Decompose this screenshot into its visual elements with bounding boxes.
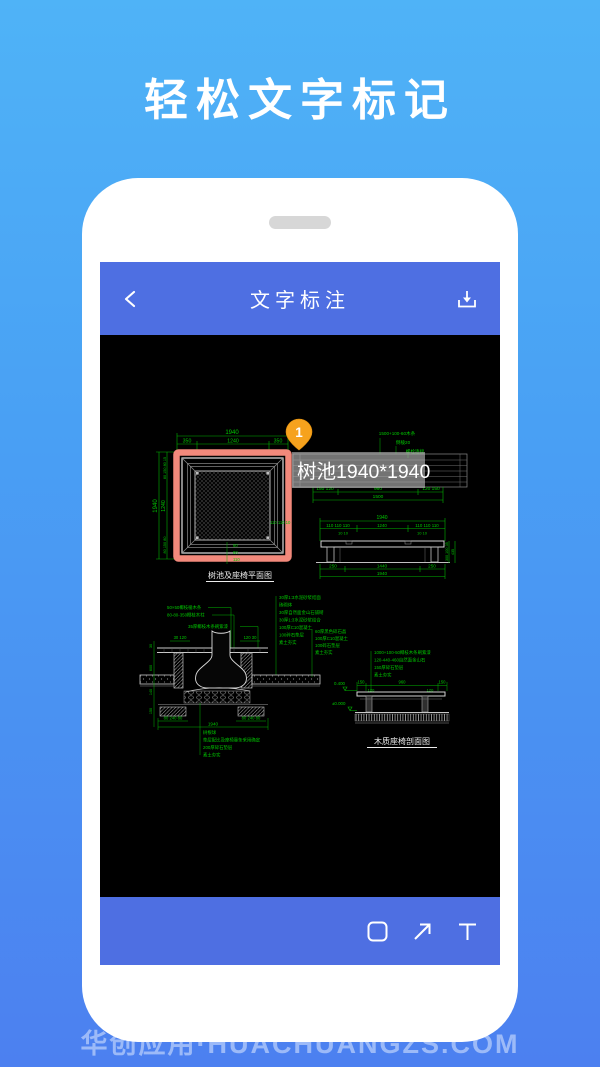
- elev-dim: 110 110 110: [326, 523, 350, 528]
- plan-dim: 80 150 80 15: [163, 457, 167, 479]
- elev-dim: 1440: [377, 564, 388, 569]
- pit-note: 100厚C10混凝土: [315, 635, 349, 642]
- app-screen: 文字标注: [100, 262, 500, 965]
- elevation-mark: ±0.000: [332, 701, 346, 706]
- pit-note: 30厚1:3水泥砂浆结面: [279, 594, 321, 601]
- elev-dim: 435: [451, 549, 455, 555]
- cad-drawing: 1940 350 1240 350 1940 1240 80 150 80 15…: [100, 335, 500, 897]
- elev-dim: 1940: [377, 571, 388, 576]
- bench-plan-dim: 1500: [373, 494, 384, 500]
- annotation-label-text[interactable]: 树池1940*1940: [297, 461, 431, 483]
- elev-dim: 10 10: [417, 531, 428, 536]
- bench-section-caption: 木质座椅剖面图: [374, 736, 430, 746]
- pit-dim: 30 120: [174, 635, 187, 640]
- pit-dim: 600: [149, 665, 153, 671]
- bench-section-dim: 150: [439, 680, 447, 685]
- pit-dim: 80 240 80: [242, 716, 261, 721]
- elev-dim: 1240: [377, 523, 387, 528]
- elev-dim: 110 110 110: [415, 523, 439, 528]
- bench-section-dim: 960: [399, 680, 407, 685]
- chevron-left-icon: [121, 289, 141, 309]
- save-button[interactable]: [450, 282, 484, 316]
- pit-note: 50×50椰枝棱木条: [167, 604, 202, 611]
- elev-dim: 300: [445, 555, 449, 561]
- plan-dim-total-top: 1940: [225, 430, 239, 436]
- arrow-icon: [411, 920, 434, 943]
- pit-note: 垫层配比及座椅靠条采用确定: [203, 737, 261, 744]
- plan-dim: 60: [233, 543, 238, 548]
- bench-section-note: 1000+100-50椰枝木条刷紫漆: [374, 649, 431, 656]
- plan-dim: 110 110 10: [270, 520, 291, 525]
- bench-elevation-view: 1940 110 110 110 1240 110 110 110 10 10 …: [316, 515, 455, 579]
- elevation-mark: 0.400: [334, 681, 346, 686]
- elev-dim: 100 35: [445, 542, 449, 554]
- pit-note: 30厚1:3水泥砂浆结合: [279, 617, 321, 624]
- elev-dim: 1940: [376, 515, 387, 521]
- bench-section-dim: 150: [358, 680, 366, 685]
- elev-dim: 250: [428, 564, 436, 569]
- back-button[interactable]: [114, 282, 148, 316]
- arrow-tool-button[interactable]: [407, 916, 437, 946]
- elev-dim: 250: [329, 564, 337, 569]
- pit-note: 80-80-350椰枝木柱: [167, 612, 205, 619]
- pit-note: 素土夯实: [315, 649, 333, 656]
- plan-dim: 350: [183, 439, 192, 445]
- pit-note: 素土夯实: [279, 639, 297, 646]
- plan-caption: 树池及座椅平面图: [208, 570, 272, 580]
- bench-plan-note: 倒棱20: [396, 439, 411, 446]
- elev-dim: 10 10: [338, 531, 349, 536]
- pit-note: 100碎石垫层: [279, 632, 304, 639]
- pit-note: 35厚椰枝木条刷紫漆: [188, 623, 229, 630]
- cad-canvas[interactable]: 1940 350 1240 350 1940 1240 80 150 80 15…: [100, 335, 500, 897]
- app-toolbar: [100, 897, 500, 965]
- plan-dim: 1240: [161, 500, 167, 512]
- rectangle-icon: [366, 920, 389, 943]
- pit-note: 100厚C10混凝土: [279, 624, 313, 631]
- marker-number: 1: [295, 425, 303, 440]
- pit-dim: 140: [149, 689, 153, 695]
- pit-note: 30厚自然面金山石铺砌: [279, 609, 324, 616]
- phone-mockup: 文字标注: [82, 178, 518, 1042]
- pit-note: 树根球: [203, 729, 217, 736]
- annotation-marker-pin[interactable]: 1: [286, 419, 312, 450]
- pit-section-view: 50×50椰枝棱木条 80-80-350椰枝木柱 35厚椰枝木条刷紫漆 30 1…: [140, 594, 349, 759]
- pit-note: 200厚碎石垫层: [203, 744, 233, 751]
- pit-rubble: [184, 691, 250, 703]
- phone-speaker: [269, 216, 331, 229]
- pit-note: 素土夯实: [203, 752, 221, 759]
- pit-note: 100碎石垫层: [315, 642, 340, 649]
- download-icon: [455, 287, 479, 311]
- bench-plan-note: 1500+100-60木条: [379, 430, 416, 437]
- pit-dim: 120 30: [244, 635, 257, 640]
- pit-dim: 30: [149, 644, 153, 648]
- plan-dim: 110: [233, 557, 240, 562]
- plan-dim-total-left: 1940: [153, 499, 159, 513]
- plan-view: 1940 350 1240 350 1940 1240 80 150 80 15…: [153, 430, 291, 582]
- page-title: 轻松文字标记: [0, 64, 600, 128]
- header-title: 文字标注: [100, 284, 500, 313]
- plan-dim: 60: [233, 550, 238, 555]
- bench-section-note: 120-440-460自然面金山石: [374, 657, 426, 664]
- plan-dim: 350: [274, 439, 283, 445]
- pit-note: 砖砌体: [279, 602, 293, 609]
- app-header: 文字标注: [100, 262, 500, 335]
- pit-dim: 1940: [208, 722, 219, 727]
- bench-section-note: 150厚碎石垫层: [374, 664, 404, 671]
- plan-dim: 1240: [227, 439, 239, 445]
- bench-section-note: 素土夯实: [374, 672, 392, 679]
- tree-trunk: [196, 631, 247, 688]
- pit-note: 60厚黑色碎石晶: [315, 628, 347, 635]
- text-icon: [456, 920, 479, 943]
- bench-section-view: 1000+100-50椰枝木条刷紫漆 120-440-460自然面金山石 150…: [332, 649, 449, 748]
- pit-dim: 150: [149, 708, 153, 714]
- pit-dim: 80 240 80: [164, 716, 183, 721]
- text-tool-button[interactable]: [452, 916, 482, 946]
- plan-dim: 80 150 80: [163, 537, 167, 554]
- rectangle-tool-button[interactable]: [362, 916, 392, 946]
- annotation-layer: 树池1940*1940 1: [286, 419, 431, 488]
